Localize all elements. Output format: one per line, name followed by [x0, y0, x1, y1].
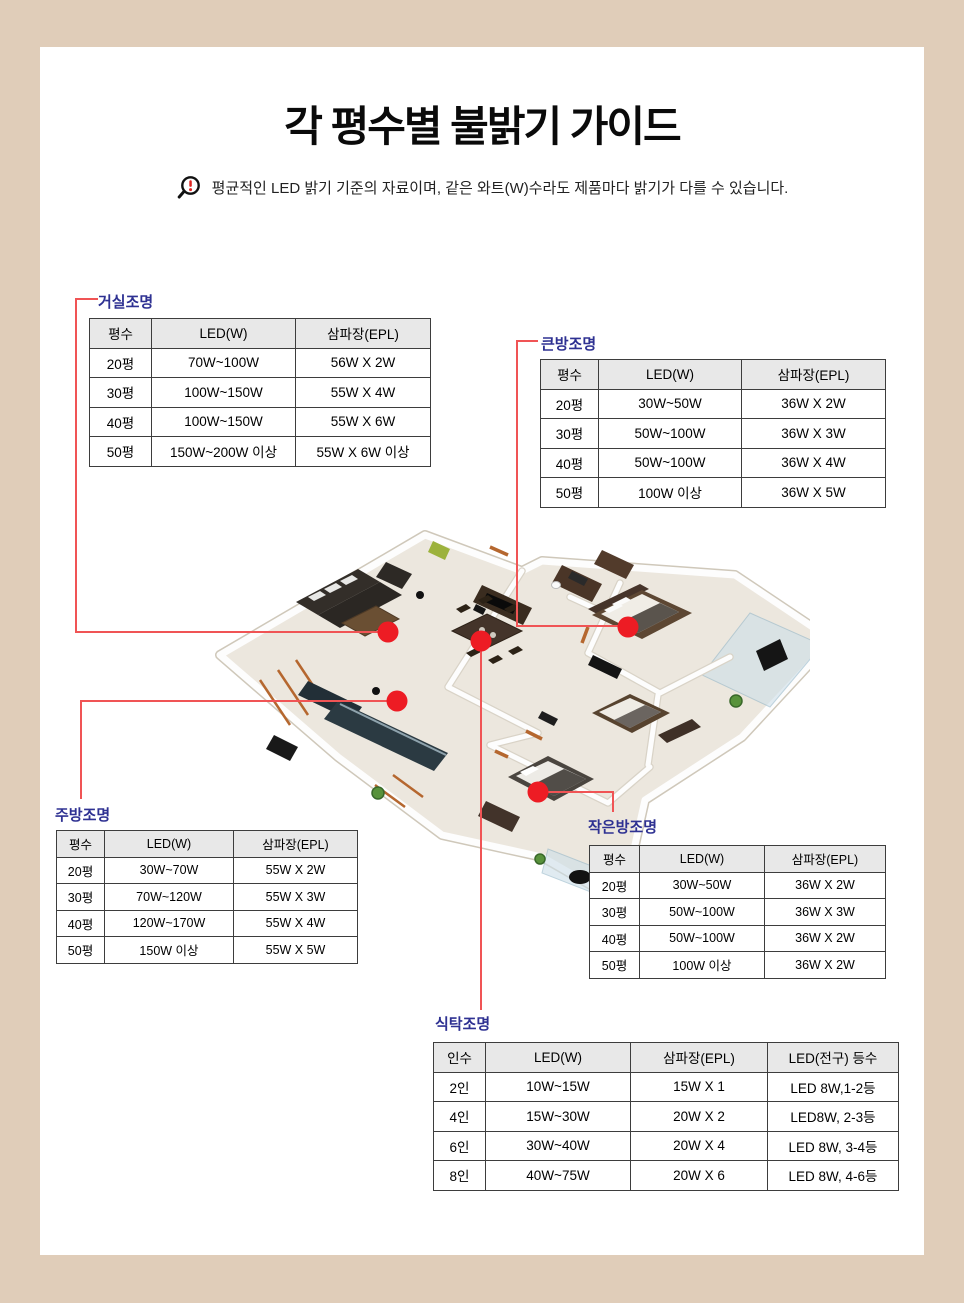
cell: 56W X 2W — [296, 348, 431, 378]
cell: 150W~200W 이상 — [152, 437, 296, 467]
plant — [372, 787, 384, 799]
cell: 150W 이상 — [105, 937, 234, 964]
cell: 36W X 3W — [742, 419, 886, 449]
cell: 36W X 2W — [742, 389, 886, 419]
cell: 10W~15W — [486, 1072, 631, 1102]
col-header: LED(W) — [152, 319, 296, 349]
col-header: 인수 — [434, 1043, 486, 1073]
col-header: LED(W) — [599, 360, 742, 390]
cell: 40평 — [590, 925, 640, 952]
col-header: 삼파장(EPL) — [631, 1043, 768, 1073]
small-room-table: 평수 LED(W) 삼파장(EPL) 20평 30W~50W 36W X 2W … — [589, 845, 886, 979]
cell: 20평 — [90, 348, 152, 378]
col-header: LED(전구) 등수 — [768, 1043, 899, 1073]
cell: 100W~150W — [152, 407, 296, 437]
table-row: 50평 100W 이상 36W X 5W — [541, 478, 886, 508]
cell: 36W X 2W — [765, 952, 886, 979]
dining-label: 식탁조명 — [435, 1013, 490, 1034]
cell: 20W X 4 — [631, 1131, 768, 1161]
col-header: 평수 — [57, 831, 105, 858]
col-header: 삼파장(EPL) — [765, 846, 886, 873]
cell: 55W X 2W — [234, 857, 358, 884]
table-row: 30평 100W~150W 55W X 4W — [90, 378, 431, 408]
lounge-chair — [266, 735, 298, 761]
table-row: 50평 150W 이상 55W X 5W — [57, 937, 358, 964]
table-row: 20평 30W~50W 36W X 2W — [590, 872, 886, 899]
cell: 30평 — [57, 884, 105, 911]
living-room-table: 평수 LED(W) 삼파장(EPL) 20평 70W~100W 56W X 2W… — [89, 318, 431, 467]
cell: 20평 — [541, 389, 599, 419]
small-room-label: 작은방조명 — [588, 816, 657, 837]
cell: 50W~100W — [599, 448, 742, 478]
cell: 55W X 6W — [296, 407, 431, 437]
cell: 36W X 3W — [765, 899, 886, 926]
table-row: 2인 10W~15W 15W X 1 LED 8W,1-2등 — [434, 1072, 899, 1102]
plant — [730, 695, 742, 707]
cell: 30W~50W — [640, 872, 765, 899]
kitchen-table: 평수 LED(W) 삼파장(EPL) 20평 30W~70W 55W X 2W … — [56, 830, 358, 964]
cell: 15W~30W — [486, 1102, 631, 1132]
cell: 30평 — [90, 378, 152, 408]
infographic-page: 각 평수별 불밝기 가이드 평균적인 LED 밝기 기준의 자료이며, 같은 와… — [0, 0, 964, 1303]
cell: 30평 — [590, 899, 640, 926]
plant — [535, 854, 545, 864]
cell: 40평 — [57, 910, 105, 937]
cell: 40평 — [90, 407, 152, 437]
cell: 8인 — [434, 1161, 486, 1191]
cell: 55W X 3W — [234, 884, 358, 911]
cell: LED 8W, 3-4등 — [768, 1131, 899, 1161]
table-row: 20평 30W~50W 36W X 2W — [541, 389, 886, 419]
col-header: 삼파장(EPL) — [234, 831, 358, 858]
cell: 50평 — [590, 952, 640, 979]
table-row: 30평 50W~100W 36W X 3W — [541, 419, 886, 449]
col-header: 삼파장(EPL) — [742, 360, 886, 390]
cell: 30W~40W — [486, 1131, 631, 1161]
big-room-label: 큰방조명 — [541, 333, 596, 354]
cell: 55W X 4W — [234, 910, 358, 937]
table-row: 30평 50W~100W 36W X 3W — [590, 899, 886, 926]
cell: 20평 — [57, 857, 105, 884]
col-header: 평수 — [541, 360, 599, 390]
cell: 36W X 2W — [765, 872, 886, 899]
cell: 55W X 5W — [234, 937, 358, 964]
table-row: 20평 30W~70W 55W X 2W — [57, 857, 358, 884]
col-header: LED(W) — [640, 846, 765, 873]
kitchen-label: 주방조명 — [55, 804, 110, 825]
cell: 50평 — [541, 478, 599, 508]
cell: 70W~120W — [105, 884, 234, 911]
cell: 40W~75W — [486, 1161, 631, 1191]
table-row: 30평 70W~120W 55W X 3W — [57, 884, 358, 911]
table-row: 40평 50W~100W 36W X 4W — [541, 448, 886, 478]
cell: 36W X 5W — [742, 478, 886, 508]
notice-row: 평균적인 LED 밝기 기준의 자료이며, 같은 와트(W)수라도 제품마다 밝… — [0, 174, 964, 201]
cell: LED 8W,1-2등 — [768, 1072, 899, 1102]
table-row: 6인 30W~40W 20W X 4 LED 8W, 3-4등 — [434, 1131, 899, 1161]
cell: 50W~100W — [640, 899, 765, 926]
cell: LED8W, 2-3등 — [768, 1102, 899, 1132]
table-row: 50평 150W~200W 이상 55W X 6W 이상 — [90, 437, 431, 467]
cell: 6인 — [434, 1131, 486, 1161]
cell: 50W~100W — [599, 419, 742, 449]
living-room-label: 거실조명 — [98, 291, 153, 312]
cell: 50W~100W — [640, 925, 765, 952]
notice-text: 평균적인 LED 밝기 기준의 자료이며, 같은 와트(W)수라도 제품마다 밝… — [212, 177, 789, 198]
table-row: 40평 50W~100W 36W X 2W — [590, 925, 886, 952]
cell: 55W X 6W 이상 — [296, 437, 431, 467]
beanbag — [569, 870, 591, 884]
col-header: 삼파장(EPL) — [296, 319, 431, 349]
cell: 2인 — [434, 1072, 486, 1102]
cell: 55W X 4W — [296, 378, 431, 408]
cell: LED 8W, 4-6등 — [768, 1161, 899, 1191]
table-row: 20평 70W~100W 56W X 2W — [90, 348, 431, 378]
col-header: LED(W) — [486, 1043, 631, 1073]
table-row: 4인 15W~30W 20W X 2 LED8W, 2-3등 — [434, 1102, 899, 1132]
cell: 20W X 6 — [631, 1161, 768, 1191]
cell: 100W 이상 — [599, 478, 742, 508]
cell: 36W X 4W — [742, 448, 886, 478]
big-room-table: 평수 LED(W) 삼파장(EPL) 20평 30W~50W 36W X 2W … — [540, 359, 886, 508]
magnifier-exclamation-icon — [176, 174, 203, 201]
dining-table: 인수 LED(W) 삼파장(EPL) LED(전구) 등수 2인 10W~15W… — [433, 1042, 899, 1191]
cell: 36W X 2W — [765, 925, 886, 952]
cell: 70W~100W — [152, 348, 296, 378]
cell: 50평 — [90, 437, 152, 467]
cell: 100W~150W — [152, 378, 296, 408]
table-row: 40평 120W~170W 55W X 4W — [57, 910, 358, 937]
cell: 30W~70W — [105, 857, 234, 884]
col-header: 평수 — [90, 319, 152, 349]
cell: 30W~50W — [599, 389, 742, 419]
cell: 30평 — [541, 419, 599, 449]
cell: 120W~170W — [105, 910, 234, 937]
cell: 20W X 2 — [631, 1102, 768, 1132]
col-header: 평수 — [590, 846, 640, 873]
page-title: 각 평수별 불밝기 가이드 — [0, 93, 964, 154]
cell: 20평 — [590, 872, 640, 899]
cell: 100W 이상 — [640, 952, 765, 979]
table-row: 50평 100W 이상 36W X 2W — [590, 952, 886, 979]
table-row: 40평 100W~150W 55W X 6W — [90, 407, 431, 437]
cell: 50평 — [57, 937, 105, 964]
col-header: LED(W) — [105, 831, 234, 858]
cell: 4인 — [434, 1102, 486, 1132]
table-row: 8인 40W~75W 20W X 6 LED 8W, 4-6등 — [434, 1161, 899, 1191]
cell: 15W X 1 — [631, 1072, 768, 1102]
cell: 40평 — [541, 448, 599, 478]
